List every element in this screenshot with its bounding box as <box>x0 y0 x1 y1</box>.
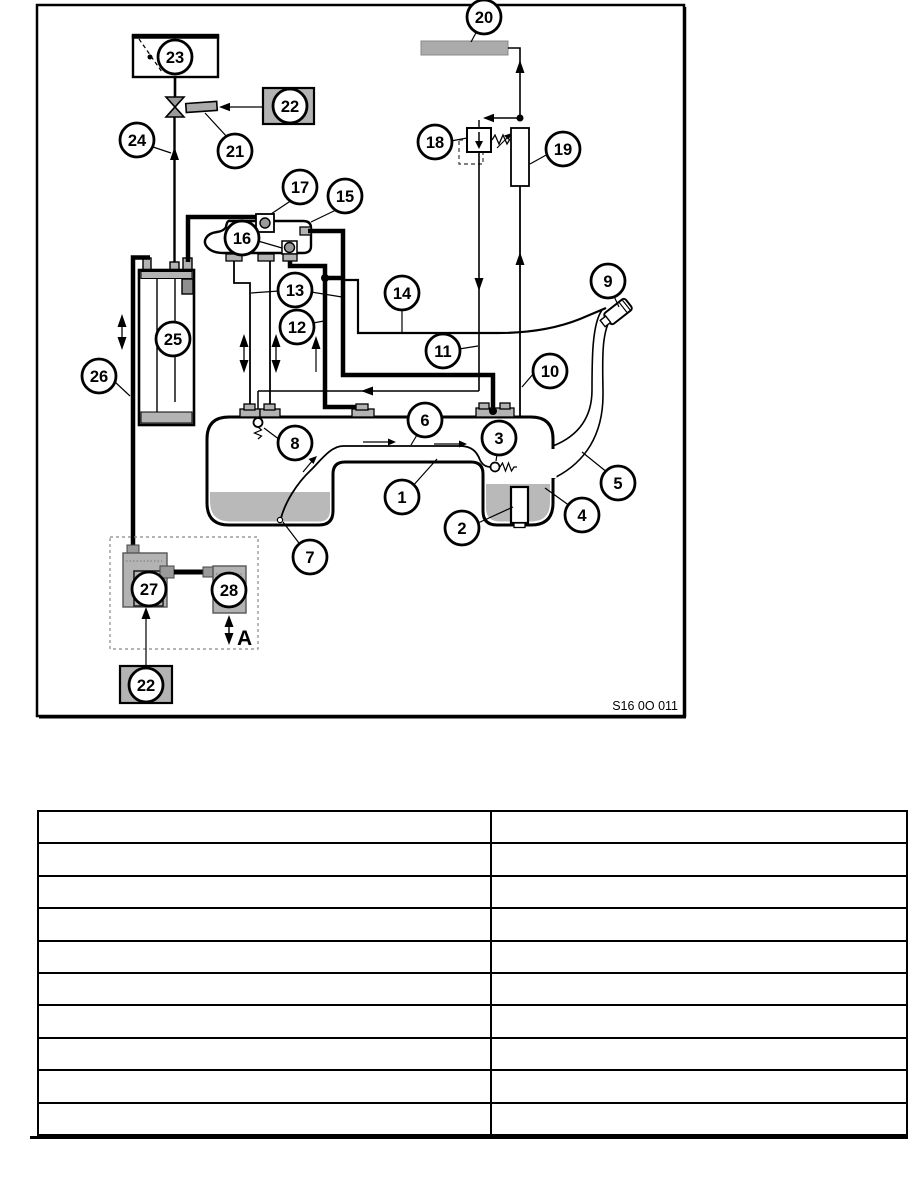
table-cell <box>491 1103 907 1135</box>
table-cell <box>491 1005 907 1037</box>
callout-number: 1 <box>397 489 406 507</box>
callout-number: 5 <box>613 475 622 493</box>
table-row <box>38 843 907 875</box>
table-cell <box>38 811 491 843</box>
callout-number: 8 <box>290 435 299 453</box>
table-cell <box>491 811 907 843</box>
callout-number: 11 <box>434 343 451 361</box>
region-label-a: A <box>237 627 252 650</box>
table-row <box>38 973 907 1005</box>
fuel-pump-2 <box>511 487 528 528</box>
callout-number: 27 <box>140 581 158 599</box>
table-row <box>38 1070 907 1102</box>
table-cell <box>38 876 491 908</box>
callout-number: 26 <box>90 368 108 386</box>
table-cell <box>38 1038 491 1070</box>
page-footer-rule <box>30 1136 908 1139</box>
callout-23: 23 <box>158 40 192 74</box>
callout-number: 2 <box>457 520 466 538</box>
table-cell <box>491 908 907 940</box>
table-cell <box>38 941 491 973</box>
table-cell <box>491 1038 907 1070</box>
table-cell <box>491 941 907 973</box>
callout-number: 4 <box>577 507 587 525</box>
junction-dot <box>321 274 329 282</box>
callout-number: 13 <box>286 282 304 300</box>
table-cell <box>38 843 491 875</box>
callout-number: 9 <box>603 273 612 291</box>
canister-port <box>182 279 193 294</box>
table-row <box>38 941 907 973</box>
connector <box>203 567 213 577</box>
legend-table <box>37 810 908 1136</box>
table-cell <box>491 973 907 1005</box>
table-row <box>38 811 907 843</box>
filler-opening <box>550 449 557 478</box>
table-cell <box>491 1070 907 1102</box>
callout-25: 25 <box>156 322 190 356</box>
callout-number: 15 <box>336 188 354 206</box>
table-cell <box>491 876 907 908</box>
callout-number: 10 <box>541 363 559 381</box>
table-row <box>38 1103 907 1135</box>
callout-number: 22 <box>281 98 299 116</box>
callout-number: 6 <box>420 412 429 430</box>
legend-table-body <box>38 811 907 1135</box>
table-cell <box>38 973 491 1005</box>
callout-22: 22 <box>273 89 307 123</box>
table-row <box>38 876 907 908</box>
junction-dot <box>489 407 497 415</box>
table-cell <box>38 1005 491 1037</box>
table-row <box>38 1005 907 1037</box>
callout-number: 12 <box>288 319 306 337</box>
table-row <box>38 1038 907 1070</box>
table-cell <box>38 908 491 940</box>
callout-27: 27 <box>132 572 166 606</box>
callout-number: 3 <box>494 430 503 448</box>
callout-number: 28 <box>220 582 238 600</box>
table-cell <box>38 1070 491 1102</box>
callout-number: 23 <box>166 49 184 67</box>
callout-number: 20 <box>475 9 493 27</box>
nozzle-21 <box>186 101 218 112</box>
callout-number: 16 <box>233 230 251 248</box>
callout-22: 22 <box>129 668 163 702</box>
table-row <box>38 908 907 940</box>
callout-number: 14 <box>393 285 412 303</box>
fuel-level-left <box>210 492 330 522</box>
callout-28: 28 <box>212 573 246 607</box>
callout-number: 21 <box>226 143 244 161</box>
callout-number: 17 <box>291 179 309 197</box>
callout-number: 18 <box>426 134 444 152</box>
drawing-number: S16 0O 011 <box>612 699 678 713</box>
callout-number: 25 <box>164 331 182 349</box>
callout-number: 22 <box>137 677 155 695</box>
callout-number: 19 <box>554 141 572 159</box>
callout-number: 24 <box>128 132 147 150</box>
callout-number: 7 <box>305 549 314 567</box>
table-cell <box>491 843 907 875</box>
table-cell <box>38 1103 491 1135</box>
